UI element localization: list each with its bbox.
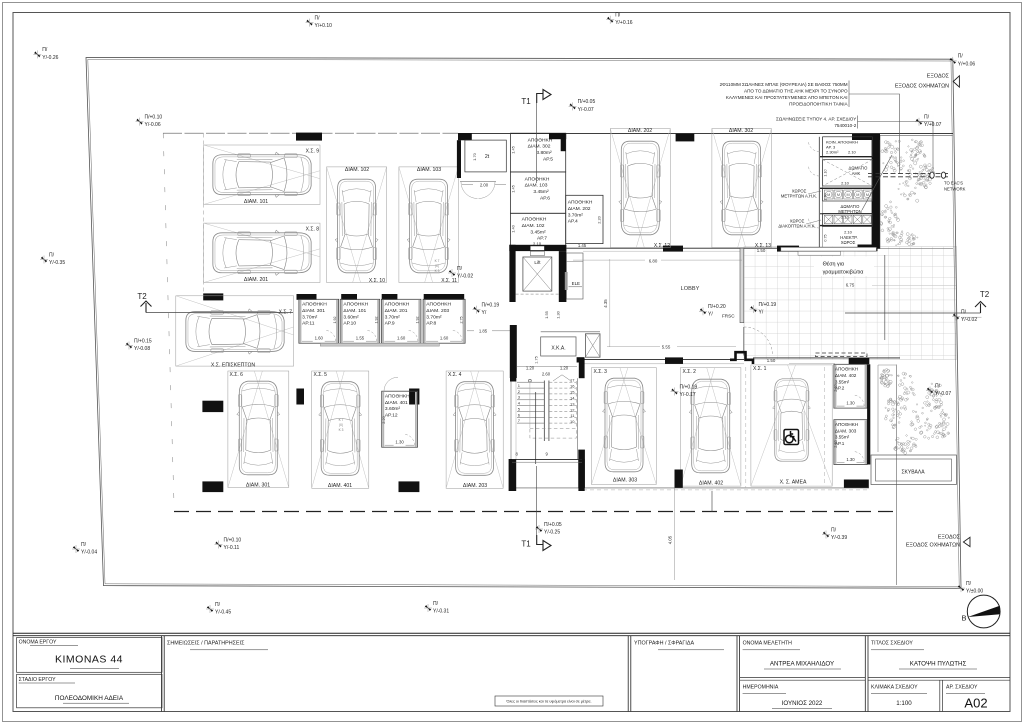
svg-text:ΑΠΟ ΤΟ ΔΩΜΑΤΙΟ ΤΗΣ ΑΗΚ ΜΕΧΡΙ Τ: ΑΠΟ ΤΟ ΔΩΜΑΤΙΟ ΤΗΣ ΑΗΚ ΜΕΧΡΙ ΤΟ ΣΥΝΟΡΟ: [744, 89, 848, 94]
svg-text:3.70m²: 3.70m²: [426, 314, 442, 320]
svg-text:ΑΠΟΘΗΚΗ: ΑΠΟΘΗΚΗ: [426, 302, 451, 308]
svg-text:1.92: 1.92: [333, 317, 337, 324]
svg-text:KIMONAS 44: KIMONAS 44: [55, 654, 123, 666]
svg-text:1.50: 1.50: [767, 358, 776, 363]
svg-text:10: 10: [570, 419, 575, 424]
svg-text:M: M: [856, 193, 859, 197]
svg-text:Κ 7: Κ 7: [339, 418, 344, 422]
svg-text:ΜΕΤΡΗΤΩΝ Α.Η.Κ.: ΜΕΤΡΗΤΩΝ Α.Η.Κ.: [781, 194, 817, 199]
svg-text:ΔΙΑΜ. 203: ΔΙΑΜ. 203: [426, 308, 449, 314]
svg-text:ΚΑΛΥΜΕΝΕΣ ΚΑΙ ΠΡΟΣΤΑΤΕΥΜΕΝΕΣ Α: ΚΑΛΥΜΕΝΕΣ ΚΑΙ ΠΡΟΣΤΑΤΕΥΜΕΝΕΣ ΑΠΟ ΜΠΕΤΟΝ …: [726, 95, 848, 100]
svg-text:Y/-0.39: Y/-0.39: [831, 535, 847, 541]
svg-text:1.60: 1.60: [440, 336, 449, 341]
svg-text:ΑΡ.12: ΑΡ.12: [385, 413, 398, 419]
svg-text:Χ.Σ. 6: Χ.Σ. 6: [230, 372, 244, 378]
svg-text:Π/: Π/: [49, 252, 55, 258]
svg-text:Κ 3: Κ 3: [435, 269, 440, 273]
svg-text:Π/: Π/: [457, 266, 463, 272]
svg-text:2.10: 2.10: [848, 150, 857, 155]
svg-text:Π/: Π/: [81, 542, 87, 548]
svg-text:5.55: 5.55: [662, 345, 671, 350]
svg-text:Χ.Σ. 2: Χ.Σ. 2: [683, 369, 697, 375]
svg-text:ΔΙΑΜ. 102: ΔΙΑΜ. 102: [522, 223, 545, 229]
svg-text:3.60m²: 3.60m²: [343, 314, 359, 320]
svg-text:ΔΙΑΜ. 201: ΔΙΑΜ. 201: [385, 308, 408, 314]
svg-text:Π/+0.19: Π/+0.19: [759, 302, 777, 308]
svg-text:ΥΠΟΓΡΑΦΗ / ΣΦΡΑΓΙΔΑ: ΥΠΟΓΡΑΦΗ / ΣΦΡΑΓΙΔΑ: [634, 641, 694, 647]
svg-text:2.30m²: 2.30m²: [826, 150, 839, 155]
svg-text:γραμματοκιβώτια: γραμματοκιβώτια: [823, 270, 864, 276]
svg-text:ΑΗΚ: ΑΗΚ: [852, 171, 861, 176]
svg-text:1.20: 1.20: [526, 365, 535, 370]
svg-text:16: 16: [570, 383, 575, 388]
svg-text:M: M: [866, 193, 869, 197]
svg-text:2.10: 2.10: [844, 230, 853, 235]
svg-text:ΔΙΑΜ. 202: ΔΙΑΜ. 202: [628, 128, 652, 134]
svg-text:ΑΡ. ΣΧΕΔΙΟΥ: ΑΡ. ΣΧΕΔΙΟΥ: [946, 685, 978, 691]
svg-text:Χ.Κ.Α.: Χ.Κ.Α.: [551, 346, 565, 352]
svg-text:Π/: Π/: [935, 383, 941, 389]
svg-text:Π/: Π/: [961, 309, 967, 315]
svg-text:3.60m²: 3.60m²: [385, 406, 401, 412]
svg-text:Y/-0.04: Y/-0.04: [81, 549, 97, 555]
svg-text:Y/: Y/: [708, 312, 713, 318]
svg-text:A02: A02: [964, 696, 987, 711]
svg-text:ΕΞΟΔΟΣ: ΕΞΟΔΟΣ: [927, 74, 950, 80]
svg-text:1:100: 1:100: [896, 700, 912, 707]
svg-text:ΕΞΟΔΟΣ ΟΧΗΜΑΤΩΝ: ΕΞΟΔΟΣ ΟΧΗΜΑΤΩΝ: [906, 543, 960, 549]
svg-text:1.45: 1.45: [511, 146, 516, 154]
svg-text:Y/±0.00: Y/±0.00: [966, 589, 983, 595]
svg-text:3.55m²: 3.55m²: [835, 435, 850, 440]
svg-text:T1: T1: [521, 97, 531, 106]
svg-text:1.50: 1.50: [757, 248, 766, 253]
svg-text:2.10: 2.10: [841, 180, 850, 185]
svg-text:Π/+0.10: Π/+0.10: [224, 537, 242, 543]
svg-text:ΑΠΟΘΗΚΗ: ΑΠΟΘΗΚΗ: [385, 393, 410, 399]
svg-text:ΔΙΑΜ. 103: ΔΙΑΜ. 103: [417, 167, 441, 173]
svg-text:Κ 3: Κ 3: [339, 428, 344, 432]
svg-text:NETWORK: NETWORK: [944, 187, 966, 192]
svg-text:ΔΙΑΜ. 103: ΔΙΑΜ. 103: [525, 183, 548, 189]
svg-text:Y/-0.35: Y/-0.35: [49, 260, 65, 266]
svg-text:ΔΙΑΜ. 302: ΔΙΑΜ. 302: [528, 144, 551, 150]
svg-text:3.80m²: 3.80m²: [536, 150, 552, 156]
svg-text:ΠΡΟΕΙΔΟΠΟΙΗΤΙΚΗ ΤΑΙΝΙΑ: ΠΡΟΕΙΔΟΠΟΙΗΤΙΚΗ ΤΑΙΝΙΑ: [789, 102, 848, 107]
svg-text:Χ.Σ. ΕΠΙΣΚΕΠΤΩΝ: Χ.Σ. ΕΠΙΣΚΕΠΤΩΝ: [211, 363, 255, 369]
svg-text:ΔΙΑΜ. 301: ΔΙΑΜ. 301: [302, 308, 325, 314]
svg-text:ΔΙΑΜ. 203: ΔΙΑΜ. 203: [463, 483, 487, 489]
svg-text:Y/-0.02: Y/-0.02: [961, 317, 977, 323]
svg-text:17: 17: [570, 378, 575, 383]
svg-text:3.45m²: 3.45m²: [533, 189, 549, 195]
svg-text:ΑΠΟΘΗΚΗ: ΑΠΟΘΗΚΗ: [385, 302, 410, 308]
svg-text:1.30: 1.30: [846, 401, 855, 406]
svg-text:M: M: [827, 193, 830, 197]
svg-text:Y/-0.25: Y/-0.25: [544, 529, 560, 535]
svg-text:Y/-0.17: Y/-0.17: [680, 392, 696, 398]
svg-text:Χ.Σ. 12: Χ.Σ. 12: [654, 243, 670, 249]
svg-text:Π/+0.20: Π/+0.20: [708, 304, 726, 310]
svg-text:Χ. Σ. ΑΜΕΑ: Χ. Σ. ΑΜΕΑ: [780, 480, 807, 486]
svg-text:6.75: 6.75: [846, 283, 855, 288]
svg-text:12: 12: [570, 407, 575, 412]
svg-text:ΑΠΟΘΗΚΗ: ΑΠΟΘΗΚΗ: [302, 302, 327, 308]
svg-text:Y/-0.26: Y/-0.26: [42, 55, 58, 61]
svg-text:ΤΙΤΛΟΣ ΣΧΕΔΙΟΥ: ΤΙΤΛΟΣ ΣΧΕΔΙΟΥ: [871, 641, 913, 647]
svg-text:2.75: 2.75: [460, 317, 464, 324]
svg-text:Y/-0.07: Y/-0.07: [578, 107, 594, 113]
svg-text:1.92: 1.92: [416, 317, 420, 324]
svg-text:2.00: 2.00: [480, 183, 489, 188]
svg-text:Χ.Σ. 10: Χ.Σ. 10: [369, 278, 385, 284]
svg-text:2Φ110ΜΜ ΣΩΛΗΝΕΣ ΜΠΛΕ (ΦΟΥΡΕΛΙΑ: 2Φ110ΜΜ ΣΩΛΗΝΕΣ ΜΠΛΕ (ΦΟΥΡΕΛΙΑ) ΣΕ ΒΑΘΟΣ…: [720, 82, 848, 87]
svg-text:1.70: 1.70: [472, 152, 477, 160]
svg-text:ΔΙΑΜ. 302: ΔΙΑΜ. 302: [729, 128, 753, 134]
svg-text:ΔΙΑΜ. 101: ΔΙΑΜ. 101: [244, 199, 268, 205]
svg-text:Y/+0.06: Y/+0.06: [958, 61, 976, 67]
svg-text:ΑΡ.10: ΑΡ.10: [343, 321, 356, 327]
svg-text:Χ.Σ. 4: Χ.Σ. 4: [448, 372, 462, 378]
svg-text:ΑΡ.11: ΑΡ.11: [302, 321, 315, 327]
svg-text:ΕΞΟΔΟΣ: ΕΞΟΔΟΣ: [938, 535, 961, 541]
svg-text:1.75: 1.75: [535, 356, 539, 363]
svg-text:15: 15: [570, 389, 575, 394]
svg-text:1.55: 1.55: [356, 336, 365, 341]
svg-text:ΔΙΑΜ. 102: ΔΙΑΜ. 102: [345, 167, 369, 173]
svg-text:1.30: 1.30: [556, 310, 561, 318]
svg-text:ΑΠΟΘΗΚΗ: ΑΠΟΘΗΚΗ: [343, 302, 368, 308]
svg-text:LOBBY: LOBBY: [681, 286, 700, 292]
svg-text:ΑΡ.9: ΑΡ.9: [385, 321, 395, 327]
svg-text:4.05: 4.05: [668, 535, 673, 544]
svg-text:ΔΙΑΜ. 301: ΔΙΑΜ. 301: [246, 482, 270, 488]
svg-text:ΑΠΟΘΗΚΗ: ΑΠΟΘΗΚΗ: [835, 367, 858, 372]
svg-text:Χ.Σ. 1: Χ.Σ. 1: [753, 366, 767, 372]
svg-text:FRSC: FRSC: [722, 314, 735, 319]
svg-text:Π/: Π/: [924, 115, 930, 121]
svg-text:1.45: 1.45: [511, 185, 516, 193]
svg-text:2.20: 2.20: [833, 439, 838, 447]
svg-text:ΔΙΑΜ. 402: ΔΙΑΜ. 402: [699, 481, 723, 487]
svg-text:T1: T1: [521, 540, 531, 549]
svg-text:ELE: ELE: [572, 281, 580, 286]
svg-text:Y/-0.07: Y/-0.07: [935, 391, 951, 397]
svg-text:ΠΟΛΕΟΔΟΜΙΚΗ ΑΔΕΙΑ: ΠΟΛΕΟΔΟΜΙΚΗ ΑΔΕΙΑ: [55, 695, 124, 702]
svg-text:Π/+0.19: Π/+0.19: [482, 303, 500, 309]
svg-text:3.70m²: 3.70m²: [568, 212, 584, 218]
svg-text:ΕΞΟΔΟΣ ΟΧΗΜΑΤΩΝ: ΕΞΟΔΟΣ ΟΧΗΜΑΤΩΝ: [895, 84, 949, 90]
svg-text:1.10: 1.10: [823, 169, 827, 176]
svg-text:1.40: 1.40: [823, 193, 827, 200]
svg-text:ΔΙΑΚΟΠΤΩΝ Α.Η.Κ.: ΔΙΑΚΟΠΤΩΝ Α.Η.Κ.: [778, 224, 815, 229]
svg-text:2.20: 2.20: [833, 383, 838, 391]
svg-text:ΔΙΑΜ. 402: ΔΙΑΜ. 402: [835, 373, 857, 378]
svg-text:Π/+0.05: Π/+0.05: [578, 99, 596, 105]
svg-text:Π/+0.05: Π/+0.05: [544, 522, 562, 528]
svg-text:2t: 2t: [485, 154, 490, 160]
svg-text:ΔΙΑΜ. 303: ΔΙΑΜ. 303: [613, 478, 637, 484]
svg-text:Χ.Σ. 8: Χ.Σ. 8: [306, 227, 320, 233]
svg-text:Y/+0.16: Y/+0.16: [615, 20, 633, 26]
svg-text:Π/: Π/: [42, 47, 48, 53]
svg-text:Π/: Π/: [315, 15, 321, 21]
svg-text:ΔΙΑΜ. 101: ΔΙΑΜ. 101: [343, 308, 366, 314]
svg-text:T2: T2: [980, 290, 990, 299]
svg-text:Y/+0.10: Y/+0.10: [315, 23, 333, 29]
svg-text:Χ.Σ. 3: Χ.Σ. 3: [594, 369, 608, 375]
svg-text:Y/-0.08: Y/-0.08: [134, 346, 150, 352]
svg-text:14: 14: [570, 395, 575, 400]
svg-text:Y/: Y/: [482, 310, 487, 316]
svg-text:Y/-0.11: Y/-0.11: [224, 545, 240, 551]
svg-text:ΗΜΕΡΟΜΗΝΙΑ: ΗΜΕΡΟΜΗΝΙΑ: [743, 685, 779, 691]
svg-text:3.70m²: 3.70m²: [302, 314, 318, 320]
svg-text:1.30: 1.30: [846, 457, 855, 462]
svg-text:Y/-0.45: Y/-0.45: [215, 609, 231, 615]
svg-text:ΣΩΛΗΝΩΣΕΙΣ ΤΥΠΟΥ 4. ΑΡ. ΣΧΕΔΙΟ: ΣΩΛΗΝΩΣΕΙΣ ΤΥΠΟΥ 4. ΑΡ. ΣΧΕΔΙΟΥ: [776, 117, 856, 122]
svg-text:Χ.Σ. 11: Χ.Σ. 11: [441, 278, 457, 284]
svg-text:Όλες οι διαστάσεις και τα υψόμ: Όλες οι διαστάσεις και τα υψόμετρα είναι…: [505, 700, 591, 704]
svg-text:M: M: [847, 193, 850, 197]
svg-text:ΑΠΟΘΗΚΗ: ΑΠΟΘΗΚΗ: [568, 200, 593, 206]
svg-text:3.70m²: 3.70m²: [385, 314, 401, 320]
svg-text:1.20: 1.20: [560, 365, 569, 370]
svg-text:3.55m²: 3.55m²: [835, 379, 850, 384]
svg-text:ΑΡ.6: ΑΡ.6: [540, 196, 550, 202]
svg-text:2.20: 2.20: [597, 215, 602, 223]
svg-text:M: M: [837, 193, 840, 197]
svg-text:T2: T2: [137, 292, 147, 301]
svg-text:Y/-0.02: Y/-0.02: [457, 273, 473, 279]
svg-text:ΙΟΥΝΙΟΣ 2022: ΙΟΥΝΙΟΣ 2022: [782, 700, 823, 707]
svg-text:4.35: 4.35: [603, 299, 608, 308]
svg-text:Π/+0.19: Π/+0.19: [680, 384, 698, 390]
svg-text:ΑΠΟΘΗΚΗ: ΑΠΟΘΗΚΗ: [528, 137, 553, 143]
svg-text:Π/+0.15: Π/+0.15: [134, 338, 152, 344]
svg-text:TO EAC'S: TO EAC'S: [944, 181, 963, 186]
svg-text:ΔΙΑΜ. 202: ΔΙΑΜ. 202: [568, 206, 591, 212]
svg-text:ΔΙΑΜ. 401: ΔΙΑΜ. 401: [385, 400, 408, 406]
svg-text:Κ 7: Κ 7: [435, 259, 440, 263]
svg-text:2.20: 2.20: [381, 415, 386, 423]
svg-text:Y/-0.06: Y/-0.06: [145, 122, 161, 128]
svg-text:ΣΚΥΒΑΛΑ: ΣΚΥΒΑΛΑ: [901, 470, 925, 476]
svg-text:2.60: 2.60: [542, 372, 551, 377]
svg-text:1.45: 1.45: [578, 243, 587, 248]
svg-text:ΣΗΜΕΙΩΣΕΙΣ / ΠΑΡΑΤΗΡΗΣΕΙΣ: ΣΗΜΕΙΩΣΕΙΣ / ΠΑΡΑΤΗΡΗΣΕΙΣ: [167, 641, 245, 647]
svg-text:Θέση για: Θέση για: [823, 261, 844, 268]
svg-text:Π/: Π/: [615, 13, 621, 19]
svg-text:3.45m²: 3.45m²: [530, 229, 546, 235]
svg-text:ΧΩΡΟΣ: ΧΩΡΟΣ: [841, 240, 856, 245]
svg-text:Π/+0.10: Π/+0.10: [145, 114, 163, 120]
svg-text:B: B: [961, 614, 966, 623]
svg-text:7540010-2: 7540010-2: [834, 123, 856, 128]
svg-text:ΑΡ.5: ΑΡ.5: [543, 157, 553, 163]
svg-text:ΑΠΟΘΗΚΗ: ΑΠΟΘΗΚΗ: [835, 422, 858, 427]
svg-text:ΟΝΟΜΑ ΕΡΓΟΥ: ΟΝΟΜΑ ΕΡΓΟΥ: [19, 640, 57, 646]
svg-text:ΔΙΑΜ. 303: ΔΙΑΜ. 303: [835, 428, 857, 433]
svg-text:ΑΠΟΘΗΚΗ: ΑΠΟΘΗΚΗ: [525, 176, 550, 182]
svg-text:Π/: Π/: [958, 54, 964, 60]
svg-text:Π/: Π/: [433, 601, 439, 607]
svg-text:|Χ|: |Χ|: [435, 264, 439, 268]
svg-text:ΣΤΑΔΙΟ ΕΡΓΟΥ: ΣΤΑΔΙΟ ΕΡΓΟΥ: [19, 677, 56, 683]
svg-text:ΚΛΙΜΑΚΑ ΣΧΕΔΙΟΥ: ΚΛΙΜΑΚΑ ΣΧΕΔΙΟΥ: [871, 685, 918, 691]
svg-text:ΑΠΟΘΗΚΗ: ΑΠΟΘΗΚΗ: [522, 217, 547, 223]
svg-text:Y/-0.31: Y/-0.31: [433, 608, 449, 614]
svg-text:ΑΝΤΡΕΑ ΜΙΧΑΗΛΙΔΟΥ: ΑΝΤΡΕΑ ΜΙΧΑΗΛΙΔΟΥ: [770, 661, 834, 668]
svg-text:|Χ|: |Χ|: [339, 423, 343, 427]
svg-text:Χ.Σ. 9: Χ.Σ. 9: [306, 149, 320, 155]
svg-text:13: 13: [570, 401, 575, 406]
svg-text:ΔΙΑΜ. 401: ΔΙΑΜ. 401: [328, 483, 352, 489]
svg-text:ΔΩΜΑΤΙΟ: ΔΩΜΑΤΙΟ: [849, 166, 869, 171]
svg-text:1.40: 1.40: [511, 224, 516, 232]
svg-text:Y/: Y/: [759, 310, 764, 316]
svg-text:ΔΙΑΜ. 201: ΔΙΑΜ. 201: [244, 277, 268, 283]
svg-text:1.92: 1.92: [374, 317, 378, 324]
svg-text:Χ.Σ. 5: Χ.Σ. 5: [314, 372, 328, 378]
svg-text:6.80: 6.80: [649, 259, 658, 264]
svg-text:Π/: Π/: [831, 527, 837, 533]
svg-text:1.60: 1.60: [397, 336, 406, 341]
svg-text:1.85: 1.85: [479, 329, 488, 334]
svg-text:1.55: 1.55: [544, 311, 549, 319]
svg-text:0.75: 0.75: [823, 234, 827, 241]
svg-text:Π/: Π/: [215, 602, 221, 608]
svg-text:ΑΡ.4: ΑΡ.4: [568, 219, 578, 225]
svg-text:Π/: Π/: [966, 581, 972, 587]
svg-text:ΚΑΤΟΨΗ ΠΥΛΩΤΗΣ: ΚΑΤΟΨΗ ΠΥΛΩΤΗΣ: [910, 661, 967, 668]
svg-text:1.60: 1.60: [315, 336, 324, 341]
svg-text:ΟΝΟΜΑ ΜΕΛΕΤΗΤΗ: ΟΝΟΜΑ ΜΕΛΕΤΗΤΗ: [743, 641, 793, 647]
svg-text:ΑΡ.8: ΑΡ.8: [426, 321, 436, 327]
svg-text:Lift: Lift: [534, 260, 541, 265]
svg-text:1.30: 1.30: [395, 440, 404, 445]
